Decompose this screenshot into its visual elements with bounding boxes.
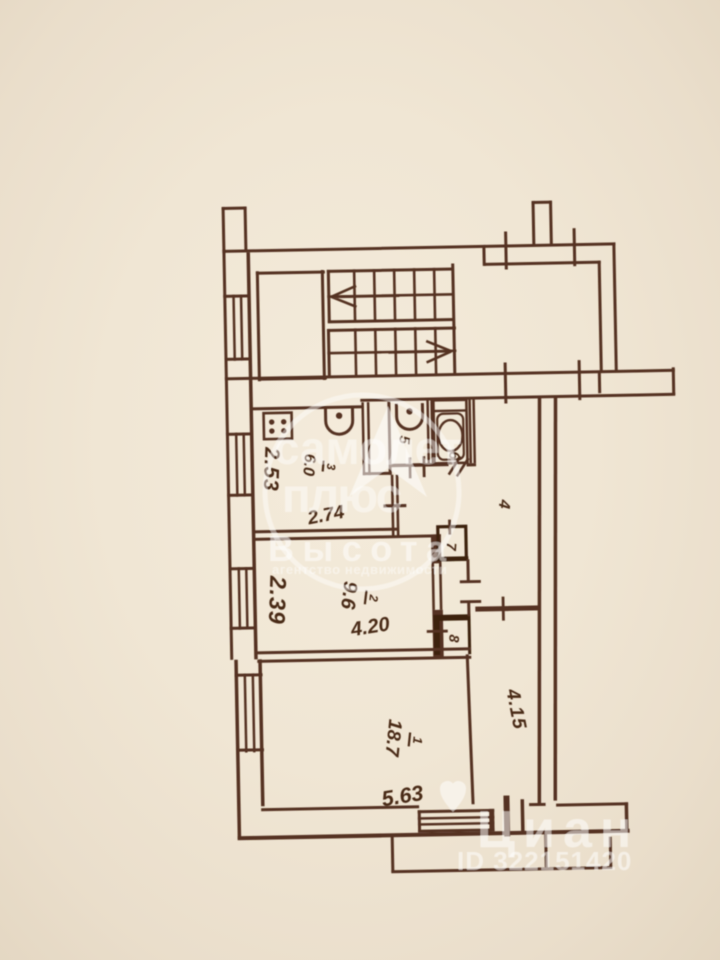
svg-text:самолет: самолет	[274, 422, 462, 474]
svg-text:плюс: плюс	[282, 470, 402, 523]
svg-text:2.39: 2.39	[264, 575, 292, 626]
svg-text:агентство недвижимости: агентство недвижимости	[272, 562, 447, 577]
svg-text:18.7: 18.7	[380, 718, 405, 758]
svg-text:8: 8	[446, 634, 463, 643]
svg-text:ID 322151420: ID 322151420	[457, 846, 632, 876]
svg-text:1: 1	[410, 736, 426, 745]
